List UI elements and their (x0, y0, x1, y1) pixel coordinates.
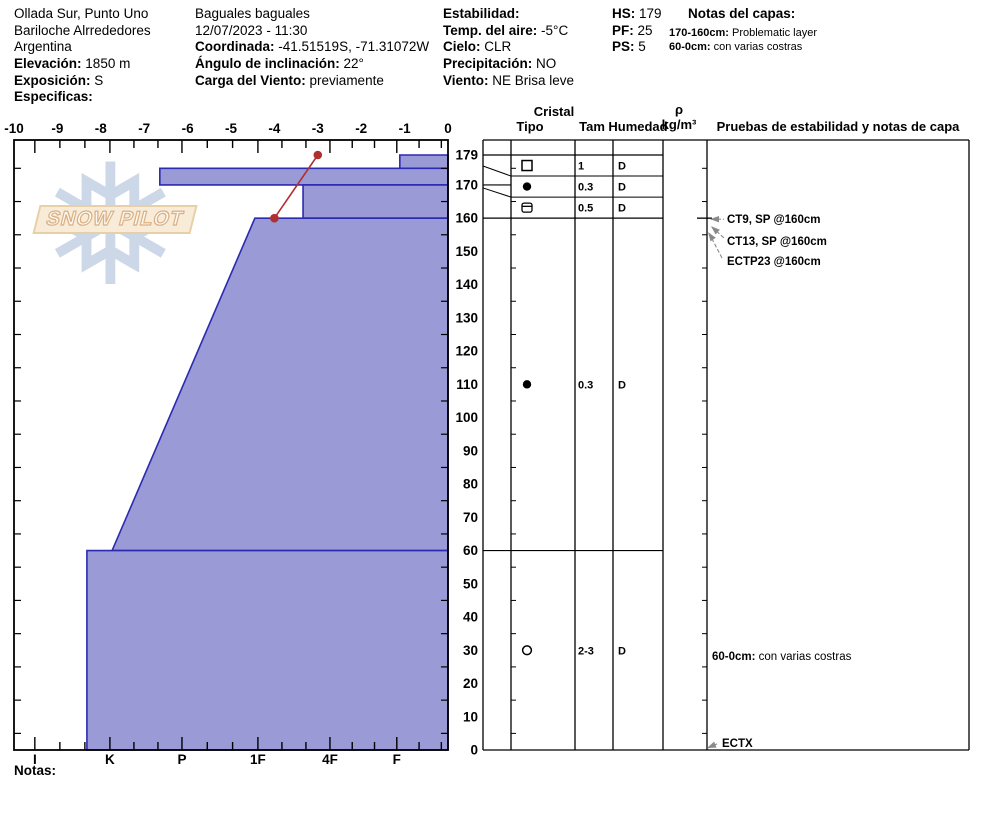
table-headers: CristalTipoTamHumedadρkg/m³Pruebas de es… (516, 102, 960, 134)
svg-text:130: 130 (455, 310, 478, 325)
svg-text:P: P (177, 752, 186, 767)
svg-text:179: 179 (455, 148, 478, 163)
svg-text:50: 50 (463, 576, 478, 591)
snow-layer (112, 218, 448, 550)
svg-text:0.5: 0.5 (578, 203, 593, 215)
svg-text:40: 40 (463, 610, 478, 625)
svg-text:-3: -3 (312, 121, 324, 136)
grain-round-icon (523, 380, 531, 388)
temperature-axis: -10-9-8-7-6-5-4-3-2-10 (4, 121, 452, 136)
svg-text:30: 30 (463, 643, 478, 658)
snow-layer (400, 155, 448, 168)
svg-text:-7: -7 (138, 121, 150, 136)
svg-text:0.3: 0.3 (578, 379, 593, 391)
grain-facet-icon (523, 646, 532, 655)
svg-text:D: D (618, 182, 626, 194)
temperature-point (314, 151, 323, 160)
svg-text:2-3: 2-3 (578, 645, 594, 657)
svg-text:Humedad: Humedad (608, 119, 667, 134)
grain-round-icon (523, 182, 531, 190)
grain-square-icon (522, 161, 532, 171)
svg-text:60-0cm: con varias costras: 60-0cm: con varias costras (712, 651, 852, 663)
svg-text:CT13, SP @160cm: CT13, SP @160cm (727, 236, 827, 248)
svg-text:ρ: ρ (675, 102, 683, 117)
temperature-point (270, 214, 279, 223)
svg-text:1F: 1F (250, 752, 266, 767)
svg-text:-5: -5 (225, 121, 237, 136)
snow-profile-graph: IKP1F4FF-10-9-8-7-6-5-4-3-2-101791701601… (0, 0, 994, 840)
svg-text:100: 100 (455, 410, 478, 425)
stability-tests: CT9, SP @160cmCT13, SP @160cmECTP23 @160… (697, 214, 852, 751)
svg-text:60: 60 (463, 543, 478, 558)
svg-text:170: 170 (455, 177, 478, 192)
svg-text:Pruebas de estabilidad y notas: Pruebas de estabilidad y notas de capa (717, 119, 961, 134)
svg-text:kg/m³: kg/m³ (662, 117, 697, 132)
svg-text:ECTX: ECTX (722, 738, 753, 750)
svg-text:0.3: 0.3 (578, 182, 593, 194)
svg-text:-6: -6 (182, 121, 194, 136)
svg-text:ECTP23 @160cm: ECTP23 @160cm (727, 256, 821, 268)
svg-text:D: D (618, 203, 626, 215)
svg-text:-10: -10 (4, 121, 24, 136)
svg-text:-1: -1 (399, 121, 411, 136)
svg-text:D: D (618, 379, 626, 391)
svg-text:K: K (105, 752, 115, 767)
svg-text:-8: -8 (95, 121, 107, 136)
svg-text:Cristal: Cristal (534, 104, 574, 119)
svg-text:-4: -4 (268, 121, 280, 136)
svg-text:70: 70 (463, 510, 478, 525)
svg-text:120: 120 (455, 344, 478, 359)
svg-text:140: 140 (455, 277, 478, 292)
svg-text:-2: -2 (355, 121, 367, 136)
svg-text:CT9, SP @160cm: CT9, SP @160cm (727, 214, 820, 226)
svg-text:4F: 4F (322, 752, 338, 767)
svg-text:1: 1 (578, 161, 584, 173)
svg-text:0: 0 (444, 121, 452, 136)
svg-text:Tam: Tam (579, 119, 605, 134)
svg-text:0: 0 (470, 743, 478, 758)
snow-layer (87, 551, 448, 750)
footer-notes-label: Notas: (14, 763, 56, 778)
snow-layer (303, 185, 448, 218)
snowpilot-profile-page: Ollada Sur, Punto Uno Bariloche Alrreded… (0, 0, 994, 840)
svg-text:-9: -9 (51, 121, 63, 136)
svg-text:Tipo: Tipo (516, 119, 543, 134)
svg-text:150: 150 (455, 244, 478, 259)
svg-text:90: 90 (463, 443, 478, 458)
svg-text:160: 160 (455, 211, 478, 226)
svg-text:20: 20 (463, 676, 478, 691)
crystal-rows: 1D0.3D0.5D0.3D2-3D (522, 161, 626, 658)
svg-text:D: D (618, 161, 626, 173)
svg-text:110: 110 (456, 377, 478, 392)
snow-layers (87, 155, 448, 750)
svg-text:10: 10 (463, 709, 478, 724)
depth-labels: 1791701601501401301201101009080706050403… (455, 148, 478, 758)
svg-text:D: D (618, 645, 626, 657)
svg-text:F: F (393, 752, 401, 767)
crust-icon (522, 203, 532, 212)
svg-text:80: 80 (463, 477, 478, 492)
